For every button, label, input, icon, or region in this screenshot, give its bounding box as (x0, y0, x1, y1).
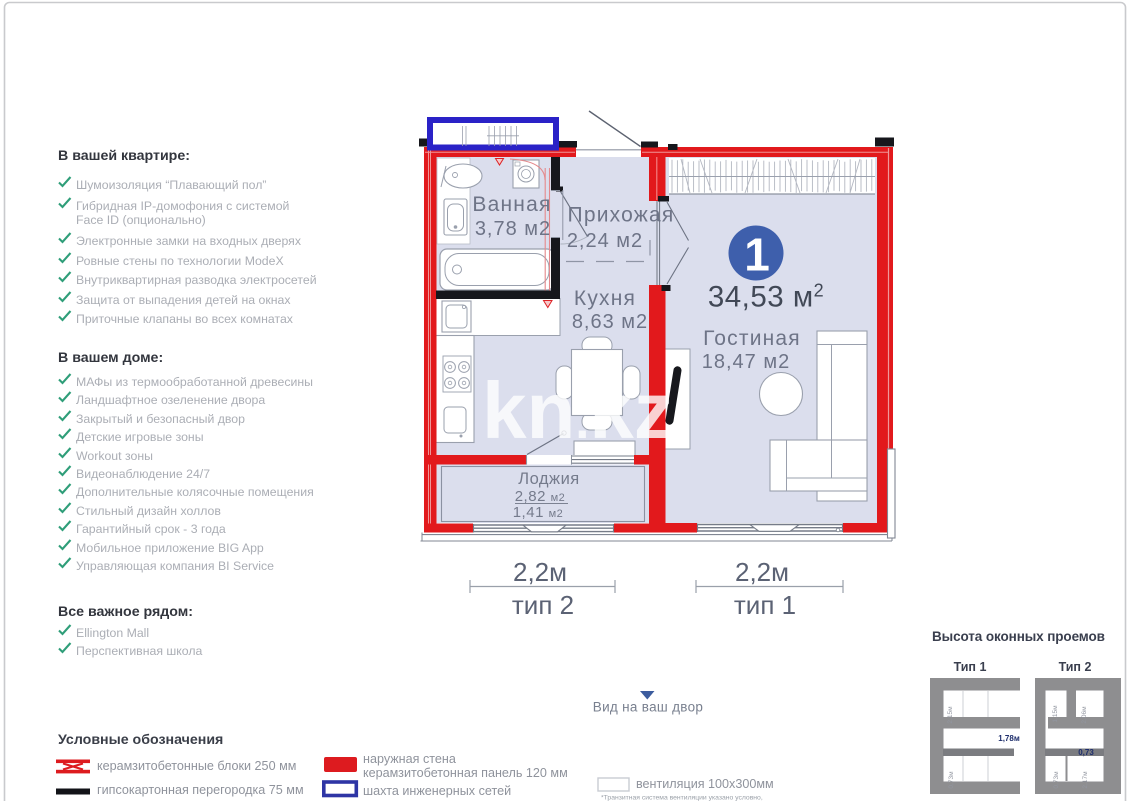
svg-text:Тип 2: Тип 2 (1059, 660, 1092, 674)
svg-text:Стильный дизайн холлов: Стильный дизайн холлов (76, 504, 221, 518)
svg-text:2,15м: 2,15м (947, 706, 954, 724)
svg-text:Гарантийный срок - 3 года: Гарантийный срок - 3 года (76, 522, 226, 536)
svg-text:34,53 м2: 34,53 м2 (708, 281, 824, 314)
svg-text:Детские игровые зоны: Детские игровые зоны (76, 430, 204, 444)
svg-text:наружная стена: наружная стена (363, 752, 456, 766)
svg-text:1,78м: 1,78м (998, 734, 1020, 743)
svg-text:Лоджия: Лоджия (518, 470, 579, 488)
svg-text:1: 1 (744, 229, 770, 281)
svg-text:0,73м: 0,73м (948, 771, 955, 789)
svg-text:Ровные стены по технологии Mod: Ровные стены по технологии ModeX (76, 254, 284, 268)
svg-text:*Транзитная система вентиляции: *Транзитная система вентиляции указано у… (601, 795, 763, 801)
svg-text:Видеонаблюдение 24/7: Видеонаблюдение 24/7 (76, 467, 210, 481)
svg-text:Шумоизоляция “Плавающий пол”: Шумоизоляция “Плавающий пол” (76, 178, 267, 192)
svg-text:МАФы из термообработанной древ: МАФы из термообработанной древесины (76, 375, 313, 389)
svg-text:Электронные замки на входных д: Электронные замки на входных дверях (76, 234, 302, 248)
svg-text:8,63 м2: 8,63 м2 (572, 311, 648, 333)
svg-text:шахта инженерных сетей: шахта инженерных сетей (363, 784, 511, 798)
svg-text:Вид на ваш двор: Вид на ваш двор (593, 700, 703, 715)
svg-text:керамзитобетонная панель 120 м: керамзитобетонная панель 120 мм (363, 766, 568, 780)
svg-text:Face ID (опционально): Face ID (опционально) (76, 213, 206, 227)
svg-text:Мобильное приложение BIG App: Мобильное приложение BIG App (76, 541, 264, 555)
svg-text:В вашем доме:: В вашем доме: (58, 350, 163, 366)
svg-text:Гибридная IP-домофония с систе: Гибридная IP-домофония с системой (76, 199, 290, 213)
svg-text:1,15м: 1,15м (1052, 705, 1059, 723)
svg-text:0,73м: 0,73м (1053, 771, 1060, 789)
svg-text:вентиляция 100x300мм: вентиляция 100x300мм (636, 777, 774, 791)
svg-text:Ванная: Ванная (472, 193, 551, 216)
svg-text:0,73: 0,73 (1078, 748, 1094, 757)
svg-text:В вашей квартире:: В вашей квартире: (58, 148, 190, 164)
svg-text:2,2м: 2,2м (513, 557, 567, 587)
svg-text:Перспективная школа: Перспективная школа (76, 644, 203, 658)
svg-text:Прихожая: Прихожая (568, 204, 675, 227)
svg-text:Защита от выпадения детей на о: Защита от выпадения детей на окнах (76, 293, 291, 307)
svg-text:2,24 м2: 2,24 м2 (567, 230, 643, 252)
svg-text:Дополнительные колясочные поме: Дополнительные колясочные помещения (76, 485, 314, 499)
svg-text:Тип 1: Тип 1 (954, 660, 987, 674)
svg-text:тип 2: тип 2 (512, 590, 574, 620)
svg-text:Кухня: Кухня (574, 287, 636, 310)
svg-text:тип 1: тип 1 (734, 590, 796, 620)
svg-text:Workout зоны: Workout зоны (76, 449, 153, 463)
svg-text:2,06м: 2,06м (1081, 706, 1088, 724)
svg-text:Внутриквартирная разводка элек: Внутриквартирная разводка электросетей (76, 273, 317, 287)
svg-text:Ландшафтное озеленение двора: Ландшафтное озеленение двора (76, 393, 265, 407)
svg-text:Все важное рядом:: Все важное рядом: (58, 604, 193, 620)
svg-text:18,47 м2: 18,47 м2 (702, 351, 790, 373)
svg-text:Ellington Mall: Ellington Mall (76, 626, 149, 640)
svg-text:Управляющая компания BI Servic: Управляющая компания BI Service (76, 559, 274, 573)
svg-text:гипсокартонная перегородка 75: гипсокартонная перегородка 75 мм (97, 783, 304, 797)
svg-text:2,17м: 2,17м (1082, 771, 1089, 789)
svg-text:3,78 м2: 3,78 м2 (475, 218, 551, 240)
svg-text:Высота оконных проемов: Высота оконных проемов (932, 629, 1105, 644)
svg-text:2,2м: 2,2м (735, 557, 789, 587)
svg-text:Приточные клапаны во всех комн: Приточные клапаны во всех комнатах (76, 312, 294, 326)
svg-text:Условные обозначения: Условные обозначения (58, 732, 223, 748)
svg-text:керамзитобетонные блоки 250 мм: керамзитобетонные блоки 250 мм (97, 759, 296, 773)
svg-text:Гостиная: Гостиная (703, 327, 801, 350)
svg-text:Закрытый и безопасный двор: Закрытый и безопасный двор (76, 412, 245, 426)
